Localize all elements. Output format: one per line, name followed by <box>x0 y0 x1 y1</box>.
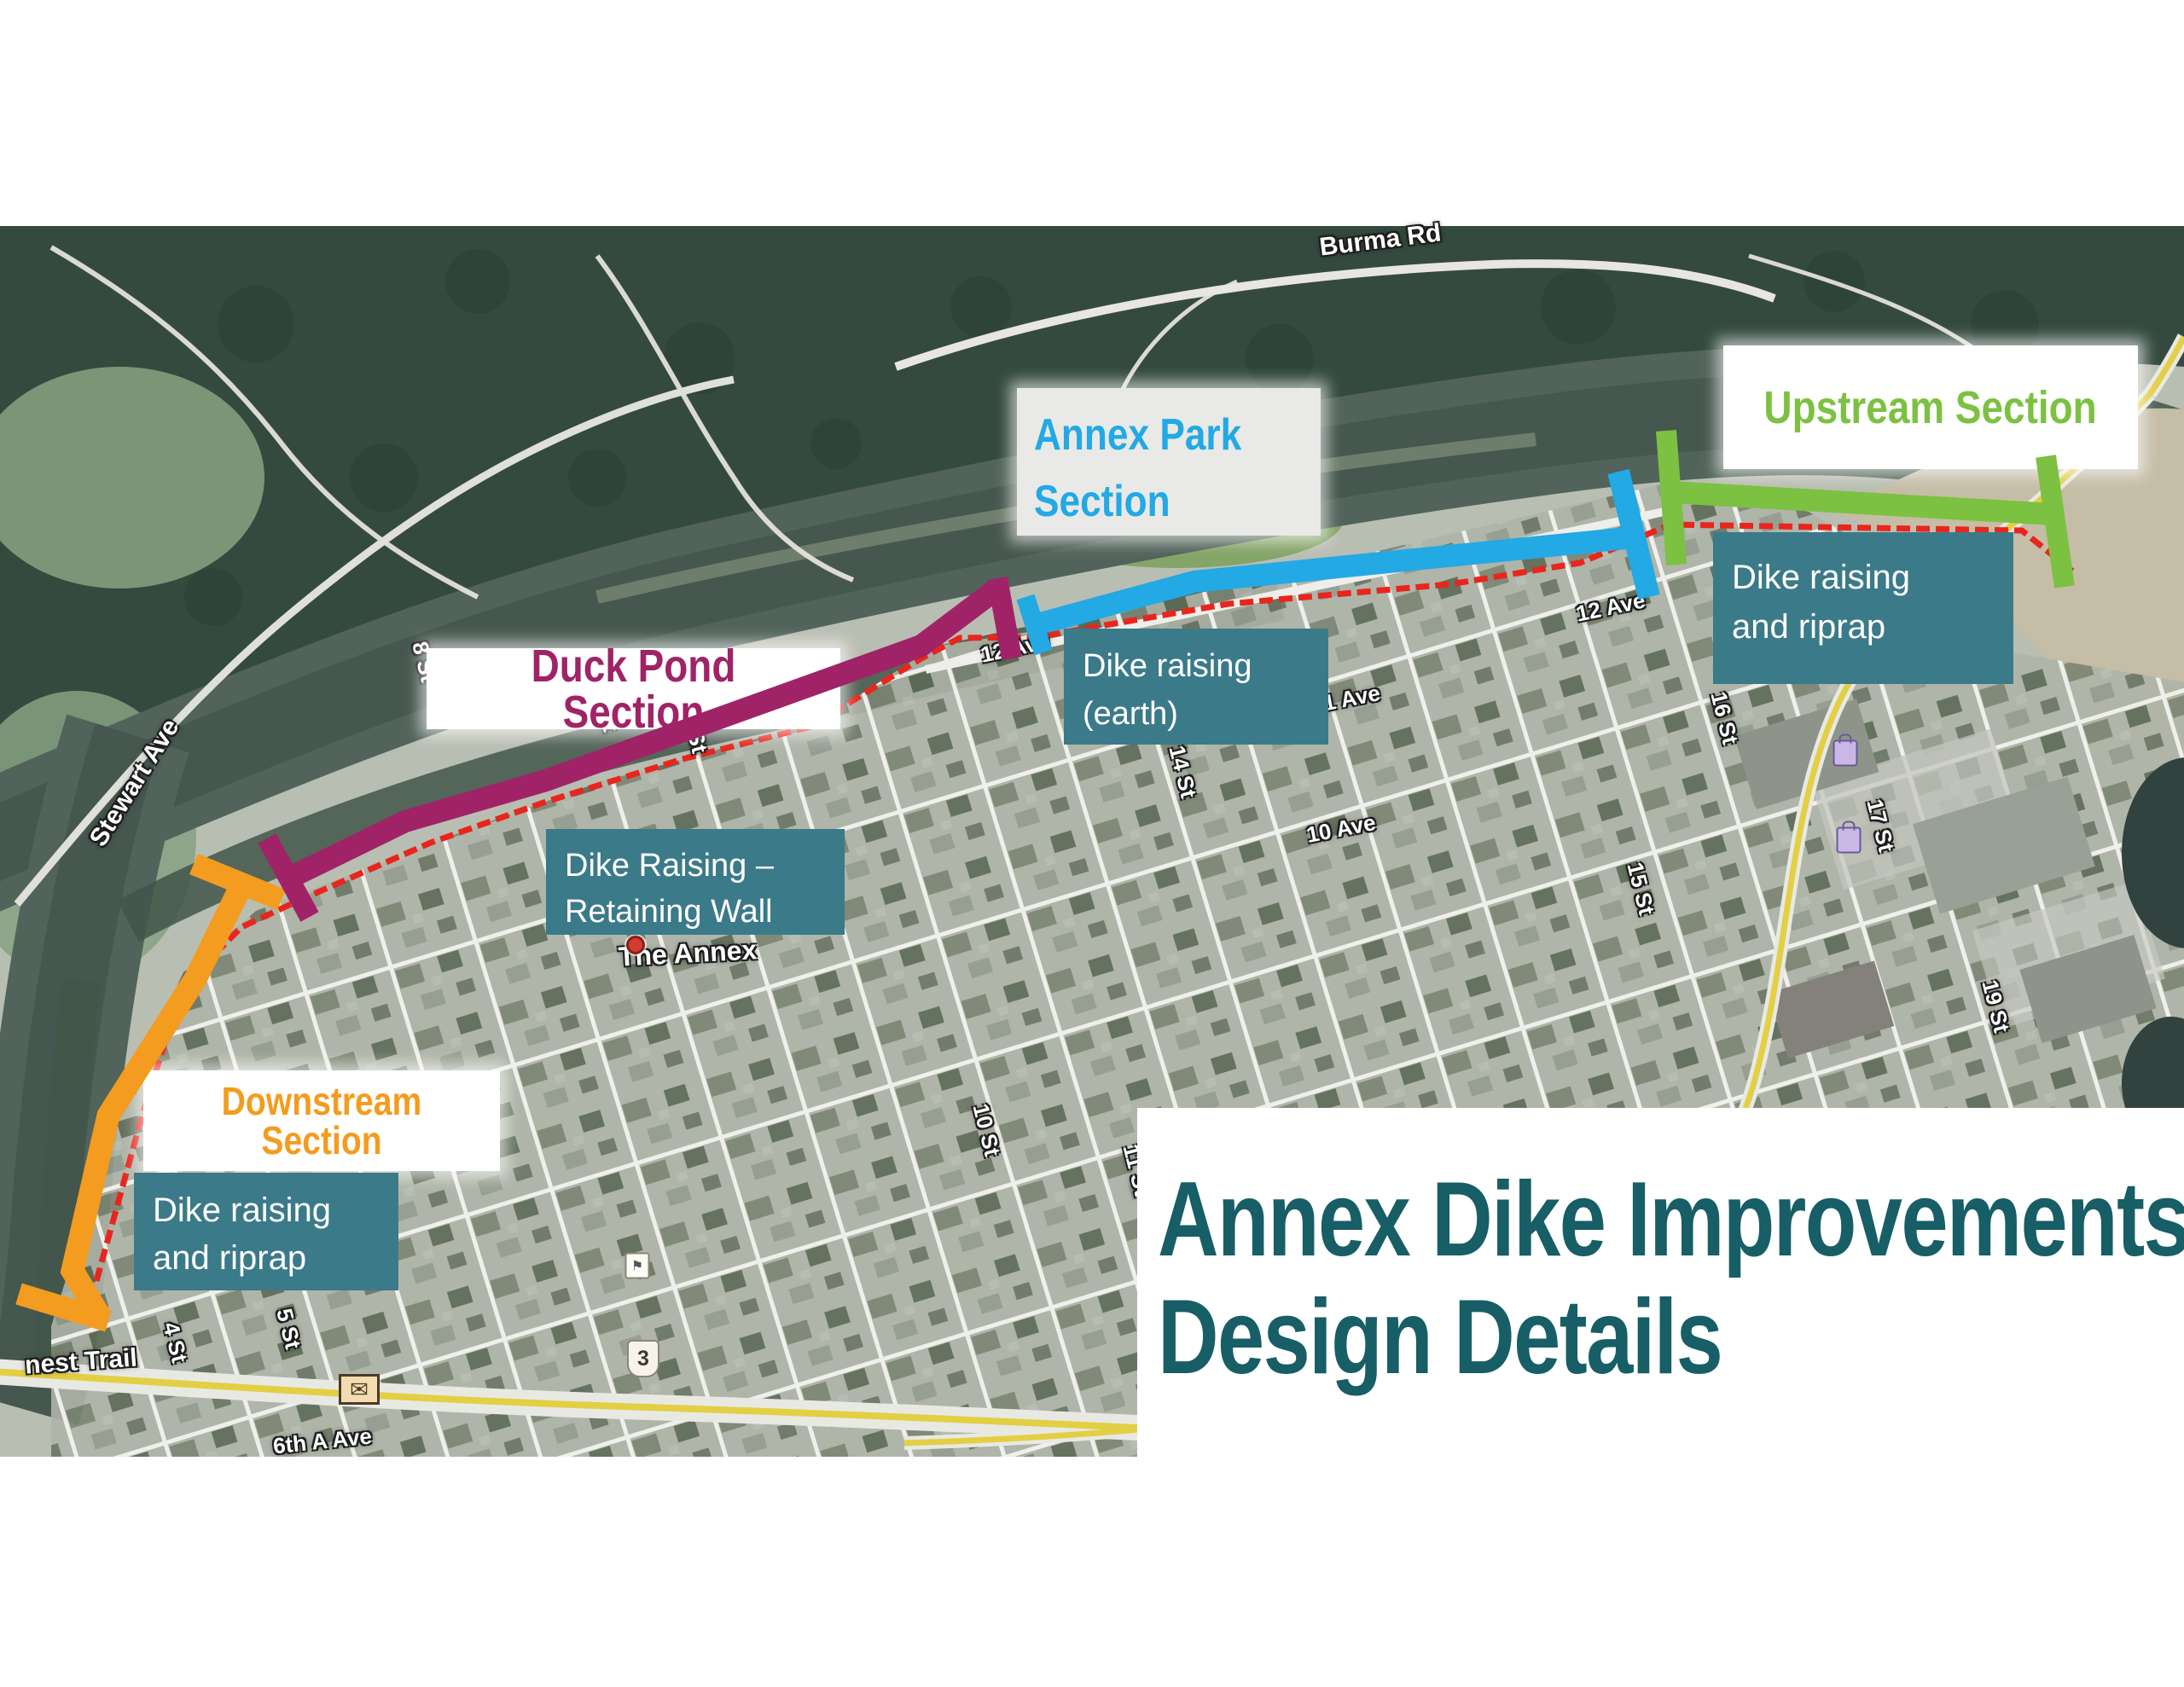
annex-park-title-line1: Annex Park <box>1034 402 1241 468</box>
annex-park-note-line1: Dike raising <box>1083 642 1320 690</box>
downstream-note-line1: Dike raising <box>153 1186 390 1234</box>
upstream-section-callout: Upstream Section <box>1723 345 2138 469</box>
annex-park-title-line2: Section <box>1034 468 1170 535</box>
annex-park-note-line2: (earth) <box>1083 690 1320 738</box>
duck-pond-section-callout: Duck Pond Section <box>427 648 840 729</box>
slide: Burma RdStewart AveThe Annexnest Trail6t… <box>0 0 2184 1687</box>
annex-park-section-callout: Annex Park Section <box>1017 388 1321 536</box>
upstream-note-line1: Dike raising <box>1732 553 2005 602</box>
downstream-note-line2: and riprap <box>153 1234 390 1282</box>
downstream-note-box: Dike raising and riprap <box>134 1173 398 1290</box>
slide-title-line2: Design Details <box>1158 1278 1978 1396</box>
downstream-section-callout: Downstream Section <box>143 1070 500 1171</box>
duck-pond-note-box: Dike Raising – Retaining Wall <box>546 829 845 935</box>
downstream-section-title: Downstream Section <box>170 1081 473 1160</box>
duck-pond-note-line2: Retaining Wall <box>565 889 836 935</box>
slide-title-line1: Annex Dike Improvements <box>1158 1161 1978 1278</box>
duck-pond-note-line1: Dike Raising – <box>565 843 836 889</box>
title-box: Annex Dike Improvements Design Details <box>1137 1108 2184 1466</box>
upstream-note-line2: and riprap <box>1732 602 2005 652</box>
upstream-note-box: Dike raising and riprap <box>1713 532 2013 684</box>
upstream-section-title: Upstream Section <box>1764 385 2097 431</box>
duck-pond-section-title: Duck Pond Section <box>457 643 809 735</box>
annex-park-note-box: Dike raising (earth) <box>1064 629 1328 745</box>
